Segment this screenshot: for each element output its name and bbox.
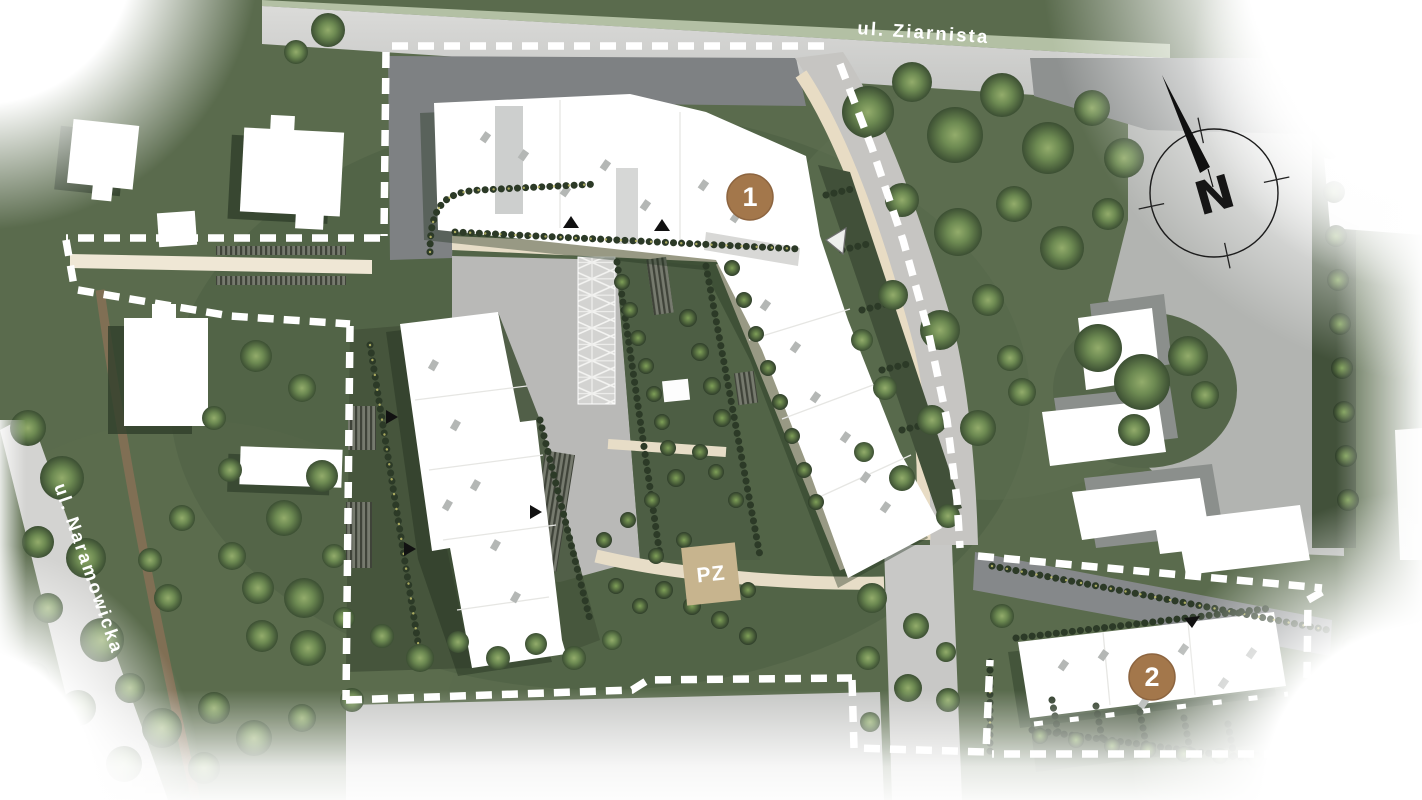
marker-2-label: 2 [1144,662,1159,692]
marker-building-1[interactable]: 1 [727,174,773,220]
zone-pz-label: PZ [696,562,727,588]
garden-shed [662,379,690,403]
site-plan: ul. Ziarnista ul. Naramowicka PZ 1 2 N [0,0,1422,800]
marker-1-label: 1 [742,182,757,212]
carport-lattice [578,257,615,404]
zone-pz: PZ [681,542,741,605]
marker-building-2[interactable]: 2 [1129,654,1175,700]
site-plan-canvas: ul. Ziarnista ul. Naramowicka PZ 1 2 N [0,0,1422,800]
